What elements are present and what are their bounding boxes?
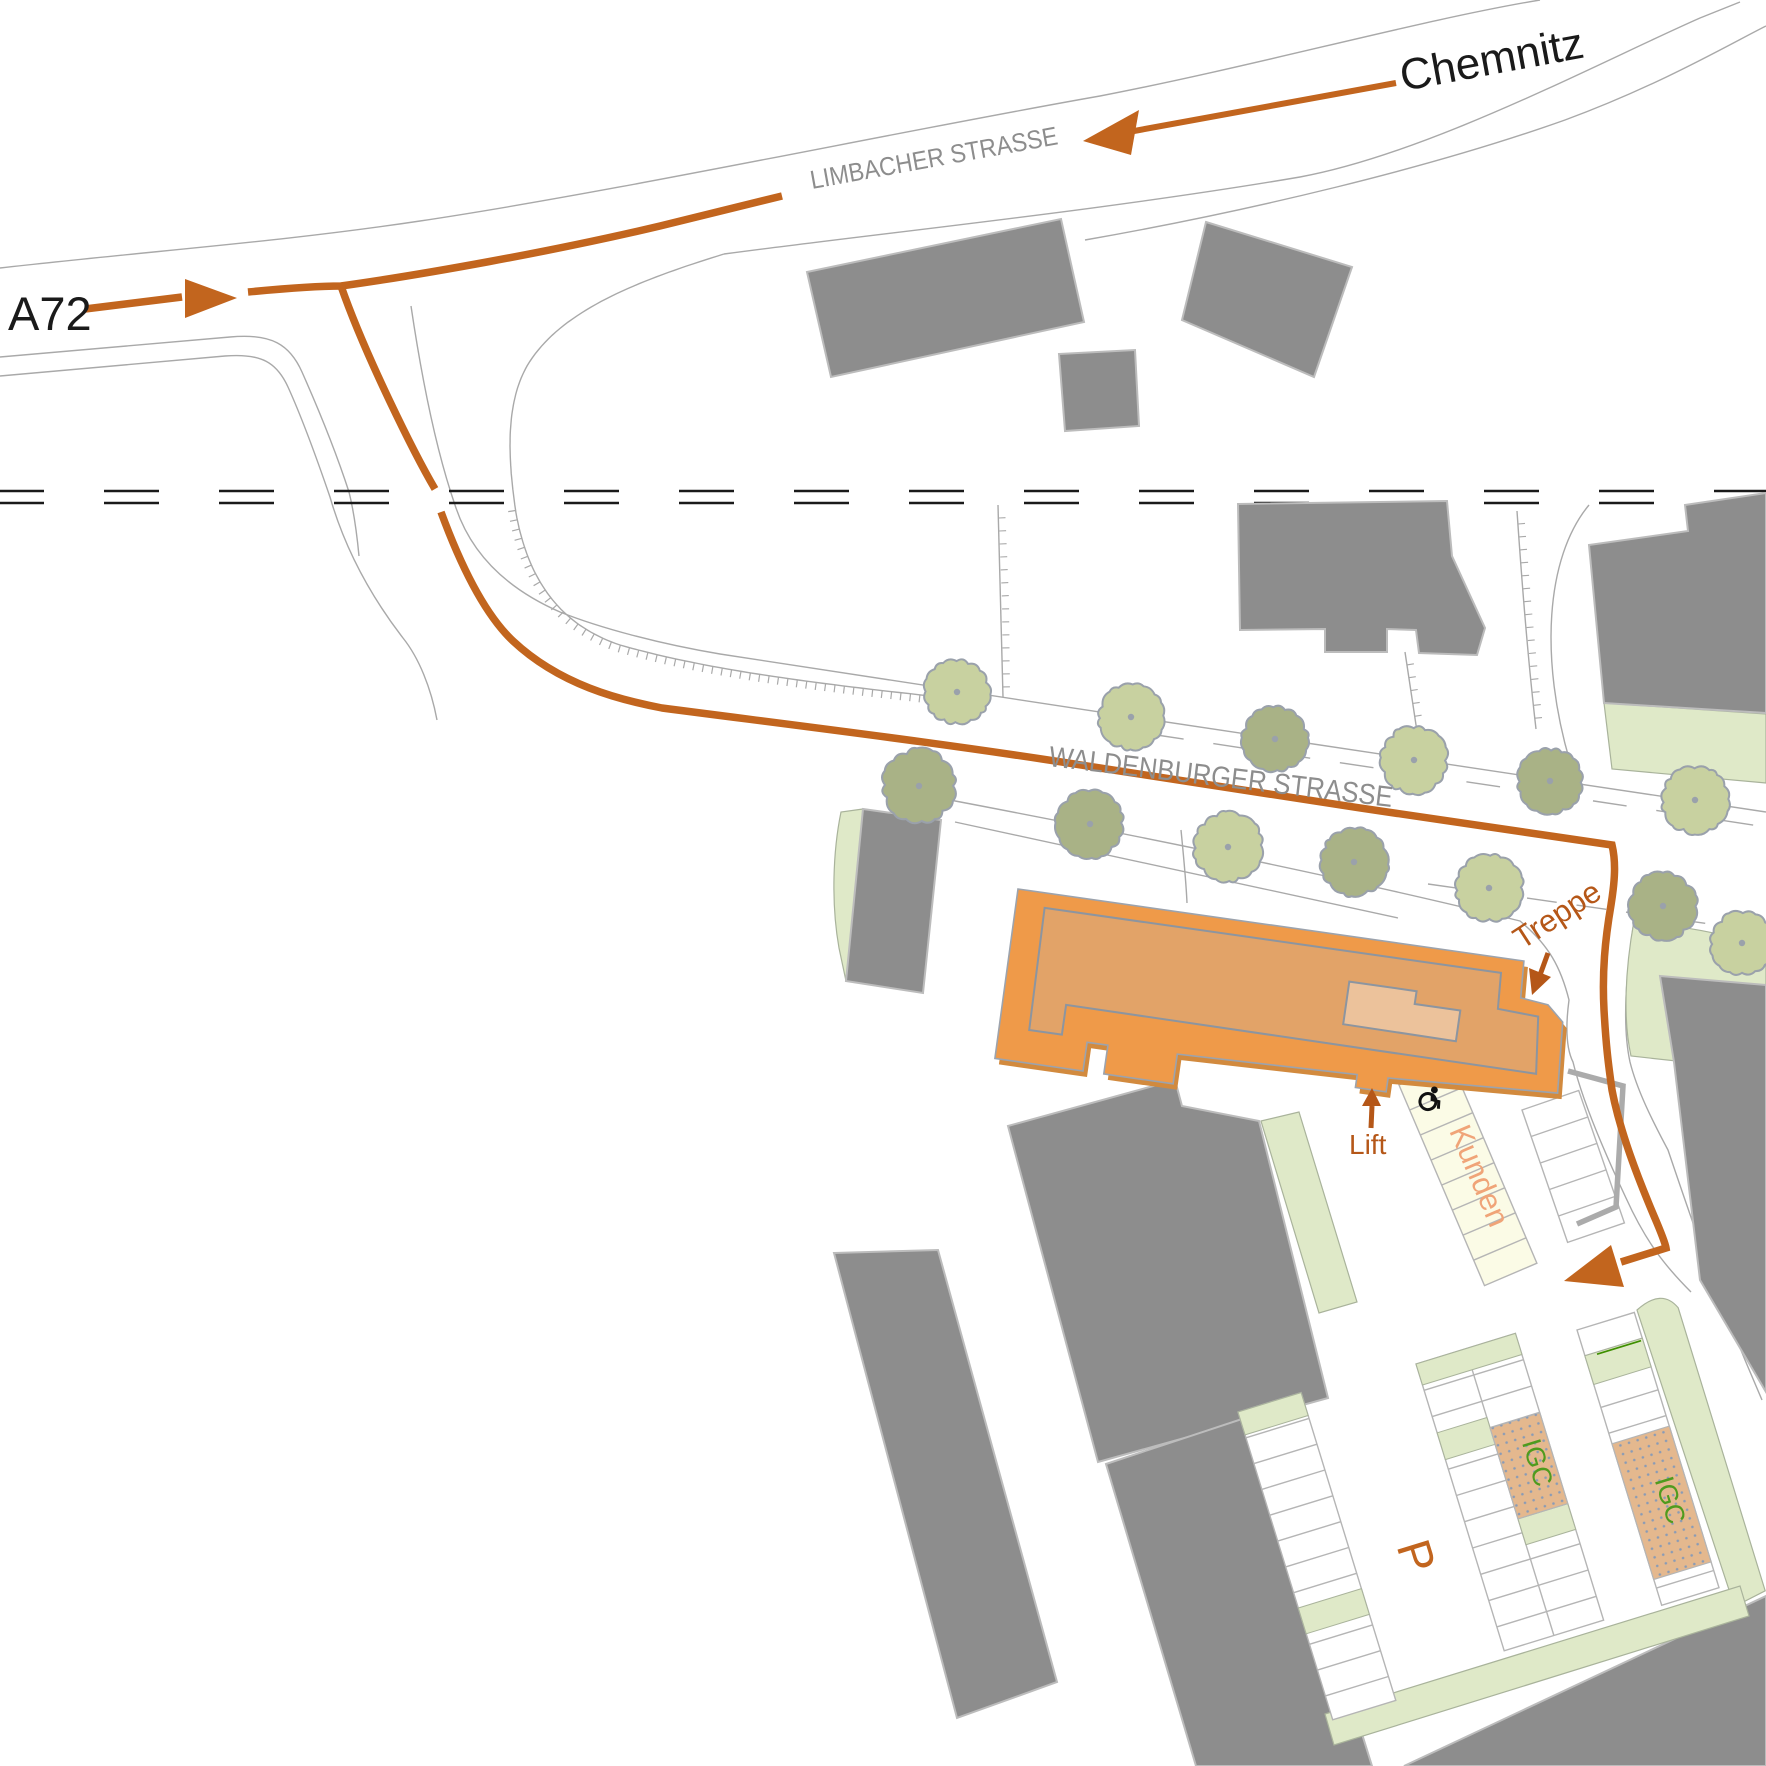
svg-text:Lift: Lift xyxy=(1349,1129,1387,1160)
svg-text:A72: A72 xyxy=(8,287,92,340)
